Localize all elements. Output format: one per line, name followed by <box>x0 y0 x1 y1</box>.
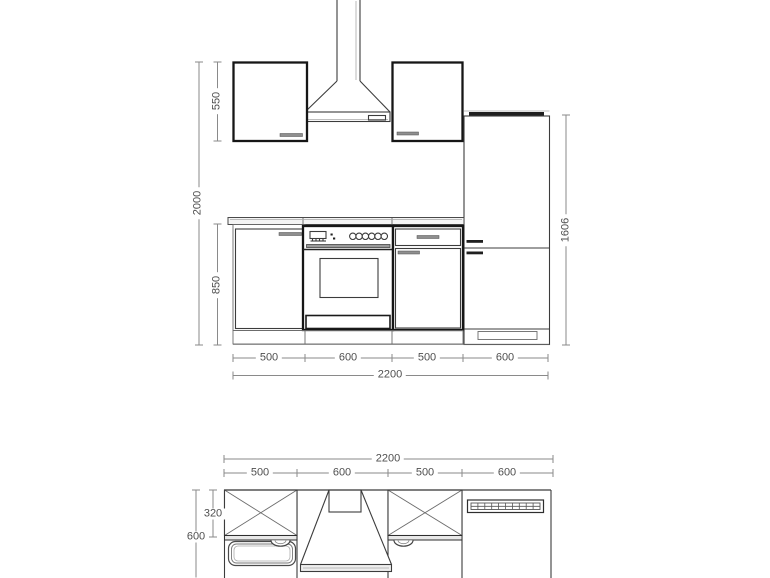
drawer-handle <box>417 236 439 239</box>
sink-plan <box>229 540 296 565</box>
dim-label-worktop-depth: 600 <box>183 532 209 543</box>
dim-label-plan-total-width: 2200 <box>372 454 404 465</box>
unit-door <box>396 249 461 329</box>
kitchen-technical-drawing: 2000 550 850 1606 500 600 500 600 2200 2… <box>0 0 770 578</box>
wall-cabinet-left <box>234 63 308 142</box>
elevation-view <box>195 0 570 380</box>
dim-label-wall-cabinet-depth: 320 <box>200 509 226 520</box>
dim-label-plan-seg-2: 600 <box>329 468 355 479</box>
dim-label-plan-seg-3: 500 <box>412 468 438 479</box>
dim-label-fridge-height: 1606 <box>561 214 572 246</box>
dim-label-elev-total-width: 2200 <box>374 370 406 381</box>
wall-cabinet-right <box>393 63 463 142</box>
oven-storage-drawer <box>306 316 390 329</box>
fridge-vent-grille-plan <box>468 500 544 513</box>
dim-label-elev-seg-2: 600 <box>335 353 361 364</box>
dim-label-elev-seg-1: 500 <box>256 353 282 364</box>
drawer-base-unit <box>393 226 463 330</box>
wall-cabinet-right-plan <box>388 490 462 546</box>
dim-label-total-height: 2000 <box>193 187 204 219</box>
dim-label-wall-cabinet-height: 550 <box>212 88 223 114</box>
oven-door-trim <box>307 245 391 248</box>
base-cabinet-left <box>233 225 305 331</box>
worktop <box>228 218 464 225</box>
fridge-freezer <box>464 111 550 345</box>
fridge-handle <box>467 252 484 255</box>
cooker-hood <box>305 0 390 122</box>
drawing-linework <box>0 0 770 578</box>
cabinet-handle <box>280 134 303 137</box>
oven-window <box>320 259 378 298</box>
cabinet-front-band <box>388 536 462 541</box>
dim-label-elev-seg-4: 600 <box>492 353 518 364</box>
cabinet-handle <box>397 132 419 135</box>
dim-label-plan-seg-4: 600 <box>494 468 520 479</box>
freezer-handle <box>467 240 484 243</box>
hood-chimney-plan <box>329 490 361 512</box>
hood-plan <box>301 490 392 572</box>
wall-cabinet-left-plan <box>225 490 298 540</box>
dim-label-plan-seg-1: 500 <box>247 468 273 479</box>
cabinet-front-band <box>225 536 298 541</box>
oven <box>303 226 393 330</box>
fridge-top-trim <box>469 112 544 116</box>
cabinet-handle <box>279 233 302 236</box>
dim-label-base-unit-height: 850 <box>212 272 223 298</box>
cabinet-handle <box>398 251 420 254</box>
door-handle-plan <box>394 540 413 546</box>
dim-label-elev-seg-3: 500 <box>414 353 440 364</box>
